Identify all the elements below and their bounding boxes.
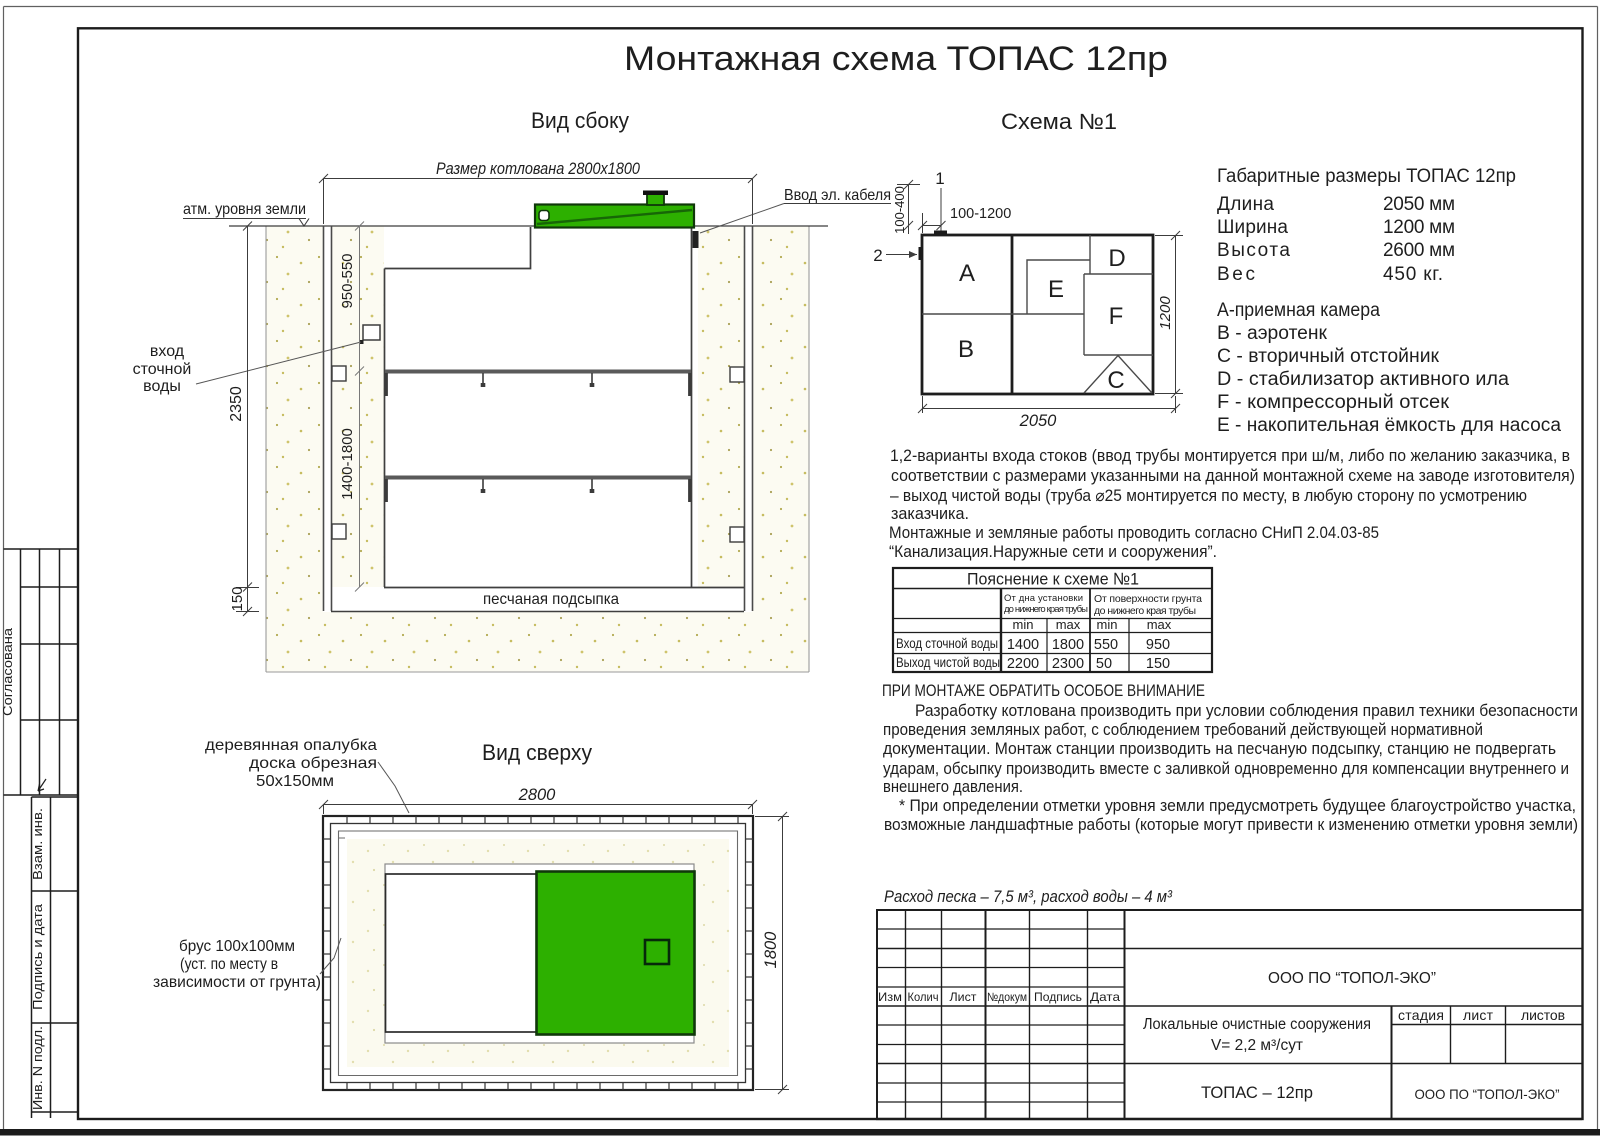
svg-text:Монтажная схема ТОПАС 12пр: Монтажная схема ТОПАС 12пр <box>624 40 1168 78</box>
svg-text:min: min <box>1013 617 1034 632</box>
svg-text:до нижнего края трубы: до нижнего края трубы <box>1004 604 1088 615</box>
svg-text:внешнего давления.: внешнего давления. <box>883 777 1023 796</box>
svg-text:Изм: Изм <box>878 990 902 1004</box>
svg-text:Вид сбоку: Вид сбоку <box>531 108 629 133</box>
svg-text:– выход чистой воды (труба ⌀25: – выход чистой воды (труба ⌀25 монтирует… <box>890 486 1527 505</box>
svg-text:Подпись: Подпись <box>1034 990 1082 1004</box>
svg-text:сточной: сточной <box>133 361 192 378</box>
svg-text:50: 50 <box>1096 656 1112 672</box>
svg-text:заказчика.: заказчика. <box>891 504 969 523</box>
svg-text:2300: 2300 <box>1052 656 1084 672</box>
svg-text:(уст. по месту в: (уст. по месту в <box>180 956 278 973</box>
svg-text:2: 2 <box>873 246 882 265</box>
svg-text:100-1200: 100-1200 <box>950 206 1011 222</box>
svg-text:450 кг.: 450 кг. <box>1383 264 1443 285</box>
svg-text:150: 150 <box>1146 656 1170 672</box>
svg-text:Инв. N подл.: Инв. N подл. <box>31 1026 45 1110</box>
svg-text:1200: 1200 <box>1157 296 1174 330</box>
svg-text:ООО ПО “ТОПОЛ-ЭКО”: ООО ПО “ТОПОЛ-ЭКО” <box>1415 1086 1560 1102</box>
svg-text:Вход сточной воды: Вход сточной воды <box>896 636 998 651</box>
svg-text:Схема №1: Схема №1 <box>1001 109 1117 134</box>
svg-text:1800: 1800 <box>762 931 780 969</box>
svg-text:1200 мм: 1200 мм <box>1383 217 1455 238</box>
svg-text:проведения земляных работ, с с: проведения земляных работ, с соблюдением… <box>883 720 1483 739</box>
svg-text:Колич: Колич <box>908 990 939 1004</box>
svg-text:Подпись и дата: Подпись и дата <box>31 904 45 1010</box>
svg-text:50х150мм: 50х150мм <box>256 773 334 790</box>
svg-text:Лист: Лист <box>950 990 978 1004</box>
svg-text:F - компрессорный отсек: F - компрессорный отсек <box>1217 392 1450 413</box>
svg-text:Ввод эл. кабеля: Ввод эл. кабеля <box>784 187 891 204</box>
svg-text:A: A <box>959 260 975 287</box>
svg-text:брус 100х100мм: брус 100х100мм <box>179 938 295 955</box>
svg-text:950: 950 <box>1146 637 1170 653</box>
svg-text:Пояснение к схеме №1: Пояснение к схеме №1 <box>967 570 1139 589</box>
svg-text:Взам. инв.: Взам. инв. <box>31 808 45 880</box>
svg-text:возможные ландшафтные работы (: возможные ландшафтные работы (которые мо… <box>884 815 1578 834</box>
svg-text:D - стабилизатор активного ил: D - стабилизатор активного ила <box>1217 369 1509 390</box>
svg-text:песчаная подсыпка: песчаная подсыпка <box>483 591 619 608</box>
svg-text:листов: листов <box>1521 1007 1565 1023</box>
svg-text:1800: 1800 <box>1052 637 1084 653</box>
svg-text:ООО ПО “ТОПОЛ-ЭКО”: ООО ПО “ТОПОЛ-ЭКО” <box>1268 970 1436 987</box>
svg-text:лист: лист <box>1463 1007 1494 1023</box>
svg-text:ударам, обсыпку производить вм: ударам, обсыпку производить вместе с зал… <box>883 759 1569 778</box>
svg-text:F: F <box>1109 303 1124 330</box>
svg-text:Дата: Дата <box>1090 990 1120 1004</box>
svg-text:Разработку котлована производи: Разработку котлована производить при усл… <box>915 701 1578 720</box>
svg-text:вход: вход <box>150 343 185 360</box>
svg-text:2200: 2200 <box>1007 656 1039 672</box>
svg-text:“Канализация.Наружные сети и с: “Канализация.Наружные сети и сооружения”… <box>889 542 1217 561</box>
svg-text:№докум: №докум <box>987 990 1027 1004</box>
svg-text:От поверхности грунта: От поверхности грунта <box>1094 593 1202 605</box>
svg-text:Ширина: Ширина <box>1217 217 1288 238</box>
svg-text:Монтажные и земляные работы пр: Монтажные и земляные работы проводить со… <box>889 523 1379 542</box>
svg-text:* При определении отметки уров: * При определении отметки уровня земли п… <box>899 796 1576 815</box>
svg-text:1: 1 <box>935 169 944 188</box>
svg-text:C: C <box>1107 367 1124 394</box>
svg-text:соответствии с размерами указа: соответствии с размерами указанными на д… <box>891 466 1575 485</box>
svg-text:2800: 2800 <box>518 786 557 804</box>
svg-text:Высота: Высота <box>1217 240 1290 261</box>
svg-text:2050: 2050 <box>1019 412 1058 430</box>
svg-text:D: D <box>1108 245 1125 272</box>
svg-text:атм. уровня земли: атм. уровня земли <box>183 201 306 218</box>
svg-text:ПРИ МОНТАЖЕ ОБРАТИТЬ ОСОБОЕ ВН: ПРИ МОНТАЖЕ ОБРАТИТЬ ОСОБОЕ ВНИМАНИЕ <box>882 681 1205 700</box>
svg-text:воды: воды <box>143 378 181 395</box>
svg-text:max: max <box>1056 617 1081 632</box>
svg-text:Расход песка – 7,5 м³, расхо: Расход песка – 7,5 м³, расход воды – 4 м… <box>884 887 1173 906</box>
svg-text:550: 550 <box>1094 637 1118 653</box>
svg-text:V= 2,2 м³/сут: V= 2,2 м³/сут <box>1211 1037 1303 1054</box>
svg-text:деревянная опалубка: деревянная опалубка <box>205 737 377 754</box>
svg-text:доска обрезная: доска обрезная <box>249 755 377 772</box>
svg-text:Е - накопительная ёмкость для: Е - накопительная ёмкость для насоса <box>1217 415 1561 436</box>
svg-text:E: E <box>1048 276 1064 303</box>
svg-text:ТОПАС – 12пр: ТОПАС – 12пр <box>1201 1083 1313 1102</box>
svg-text:В - аэротенк: В - аэротенк <box>1217 323 1328 344</box>
svg-text:А-приемная камера: А-приемная камера <box>1217 300 1380 321</box>
svg-text:Выход чистой воды: Выход чистой воды <box>896 655 1000 670</box>
svg-text:1400-1800: 1400-1800 <box>339 428 356 500</box>
svg-text:зависимости от грунта): зависимости от грунта) <box>153 974 321 991</box>
svg-text:100-400: 100-400 <box>892 186 907 234</box>
svg-text:С - вторичный отстойник: С - вторичный отстойник <box>1217 346 1440 367</box>
svg-text:документации. Монтаж станции п: документации. Монтаж станции производить… <box>883 739 1556 758</box>
svg-text:стадия: стадия <box>1398 1007 1444 1023</box>
svg-text:2600 мм: 2600 мм <box>1383 240 1455 261</box>
svg-text:950-550: 950-550 <box>339 253 356 308</box>
svg-text:max: max <box>1147 617 1172 632</box>
svg-text:150: 150 <box>229 586 246 611</box>
svg-text:Вес: Вес <box>1217 264 1255 285</box>
svg-text:до нижнего края трубы: до нижнего края трубы <box>1094 605 1196 617</box>
svg-text:1400: 1400 <box>1007 637 1039 653</box>
svg-text:Вид сверху: Вид сверху <box>482 740 592 765</box>
svg-text:1,2-варианты входа стоков (вв: 1,2-варианты входа стоков (ввод трубы мо… <box>890 446 1570 465</box>
svg-text:Размер котлована 2800х1800: Размер котлована 2800х1800 <box>436 160 641 178</box>
svg-text:От дна установки: От дна установки <box>1004 593 1083 604</box>
svg-text:Локальные очистные сооружения: Локальные очистные сооружения <box>1143 1016 1371 1033</box>
svg-text:Длина: Длина <box>1217 194 1274 215</box>
svg-text:Согласована: Согласована <box>0 627 15 716</box>
svg-text:Габаритные размеры ТОПАС 12пр: Габаритные размеры ТОПАС 12пр <box>1217 166 1516 187</box>
svg-text:B: B <box>958 336 974 363</box>
svg-text:2050 мм: 2050 мм <box>1383 194 1455 215</box>
svg-text:2350: 2350 <box>228 386 245 422</box>
svg-text:min: min <box>1097 617 1118 632</box>
